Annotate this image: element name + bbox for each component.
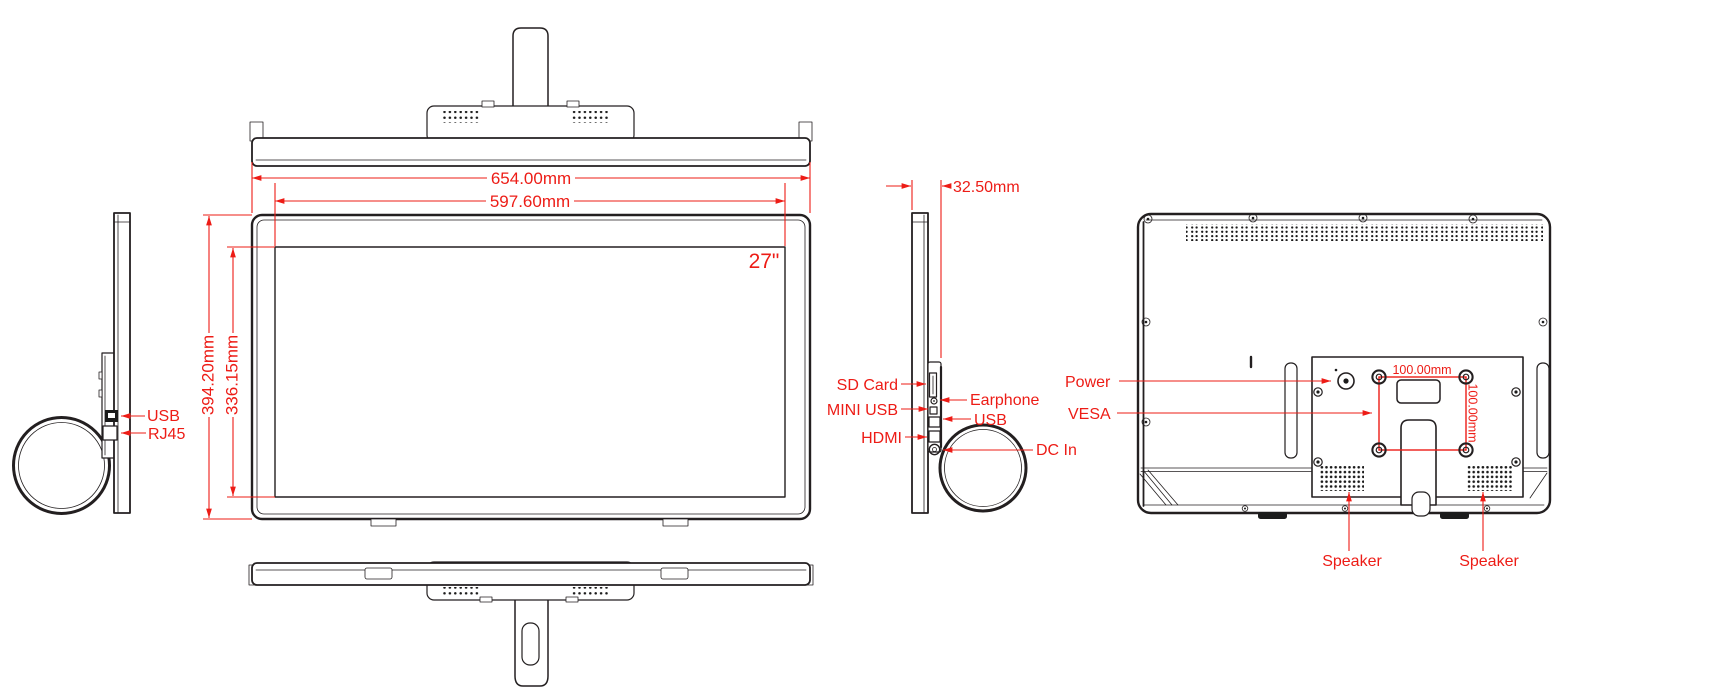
mount-rail-right [1537, 363, 1549, 458]
bottom-foot [1258, 512, 1287, 519]
monitor-slab-right [912, 213, 928, 513]
vesa-label: VESA [1068, 406, 1111, 423]
sd-card-label: SD Card [837, 377, 898, 394]
bezel-tab [663, 519, 688, 526]
mount-rail-left [1285, 363, 1297, 458]
speaker-grille-right [1467, 466, 1513, 491]
mini-usb-label: MINI USB [827, 402, 898, 419]
dim-outer-width-label: 654.00mm [491, 169, 571, 188]
top-vent-grille [1186, 224, 1543, 241]
bump-tab [482, 101, 494, 107]
bezel-tab [661, 568, 688, 579]
vent-grille [571, 111, 609, 123]
rj45-label: RJ45 [148, 426, 185, 443]
right-side-view: 32.50mm SD Card MINI USB HDMI Earphone U… [827, 179, 1077, 513]
monitor-dimension-diagram: USB RJ45 27" 654.00mm 597.60mm 394.20mm … [0, 0, 1713, 694]
dim-screen-height-label: 336.15mm [222, 335, 241, 415]
dc-in-label: DC In [1036, 442, 1077, 459]
monitor-slab-top [252, 138, 810, 166]
stand-base-circle-inner [19, 423, 105, 509]
compartment-notch [99, 372, 102, 379]
power-label: Power [1065, 374, 1111, 391]
diagram-canvas: USB RJ45 27" 654.00mm 597.60mm 394.20mm … [0, 0, 1713, 694]
bottom-foot [1440, 512, 1469, 519]
bump-tab [566, 597, 578, 602]
stand-base-circle-inner [945, 430, 1022, 507]
speaker-grille-left [1320, 466, 1364, 491]
vent-grille [571, 587, 609, 596]
vesa-height-label: 100.00mm [1466, 383, 1480, 442]
cable-slot [522, 623, 539, 665]
front-view: 27" 654.00mm 597.60mm 394.20mm 336.15mm [198, 162, 810, 526]
dim-outer-height-label: 394.20mm [198, 335, 217, 415]
vesa-width-label: 100.00mm [1392, 363, 1451, 377]
bottom-view [249, 562, 813, 686]
monitor-slab-left [114, 213, 130, 513]
stand-neck-slot [1412, 492, 1430, 516]
screen-size-label: 27" [749, 250, 780, 273]
stand-base-circle [940, 425, 1026, 511]
bezel-tab [365, 568, 392, 579]
bezel-outer [252, 215, 810, 519]
rear-port-compartment [102, 353, 115, 458]
stand-pole-top [513, 28, 548, 109]
bezel-tab [371, 519, 396, 526]
left-side-view: USB RJ45 [14, 213, 186, 514]
handle-recess [1397, 380, 1440, 403]
dim-screen-width-label: 597.60mm [490, 192, 570, 211]
thickness-label: 32.50mm [953, 179, 1020, 196]
vent-grille [441, 111, 479, 123]
top-view [250, 28, 812, 166]
bump-tab [567, 101, 579, 107]
hdmi-label: HDMI [861, 430, 902, 447]
bump-tab [480, 597, 492, 602]
earphone-jack-pin [933, 400, 935, 402]
side-usb-label: USB [147, 408, 180, 425]
speaker-right-label: Speaker [1459, 553, 1519, 570]
vent-grille [441, 587, 479, 596]
alignment-dot [1335, 369, 1338, 372]
right-usb-label: USB [974, 412, 1007, 429]
rj45-port [103, 426, 117, 440]
power-button-dot [1343, 378, 1348, 383]
speaker-left-label: Speaker [1322, 553, 1382, 570]
earphone-label: Earphone [970, 392, 1039, 409]
monitor-slab-bottom [252, 563, 810, 585]
usb-port-slot [108, 413, 115, 418]
compartment-notch [99, 390, 102, 397]
back-view: 100.00mm 100.00mm Power VESA Speaker Spe… [1065, 214, 1550, 570]
stand-base-circle [14, 418, 110, 514]
